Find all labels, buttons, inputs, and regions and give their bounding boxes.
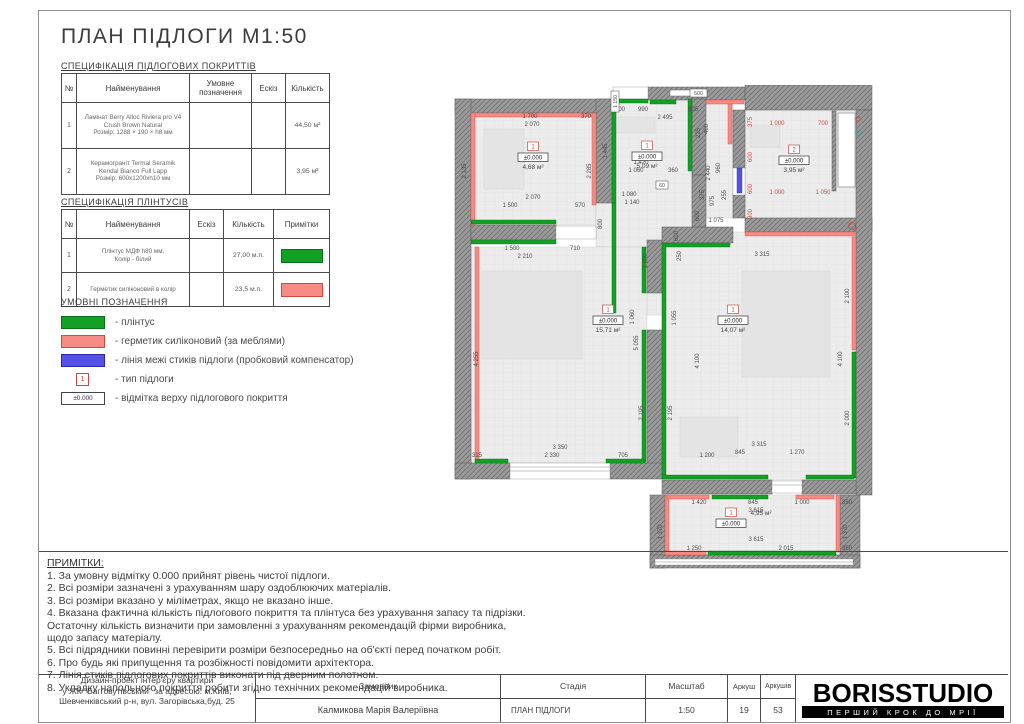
dimension-label: 2 100 <box>845 288 851 304</box>
plinth-band <box>612 99 616 203</box>
boxed-dimension-label: 500 <box>694 91 703 97</box>
dimension-label: 4 100 <box>695 353 701 369</box>
column-header: Примітки <box>274 210 330 239</box>
furniture-outline <box>742 271 830 377</box>
legend-swatch <box>61 335 105 348</box>
wall <box>455 99 471 479</box>
room-area: 3,95 м² <box>783 167 805 174</box>
dimension-label: 1 370 <box>843 524 849 540</box>
elevation-value: ±0.000 <box>722 521 741 527</box>
dimension-label: 1 800 <box>643 253 649 269</box>
note-color-swatch <box>281 283 323 297</box>
wall <box>610 463 662 479</box>
sealant-band <box>852 237 856 350</box>
plinth-swatch <box>61 316 105 329</box>
dimension-label: 375 <box>748 116 754 127</box>
dimension-label: 2 195 <box>639 405 645 421</box>
elevation-value: ±0.000 <box>638 154 657 160</box>
legend-label: - відмітка верху підлогового покриття <box>115 393 288 404</box>
floor-plan-drawing: 1 7003702 0702 1352 2852 0701 5005701 50… <box>450 85 875 577</box>
symbol-cell <box>190 103 252 149</box>
project-line: у ЖК "Багговутівський" за адресою: м.Киї… <box>39 686 255 697</box>
column-header: № <box>62 74 77 103</box>
dimension-label: 2 070 <box>524 122 540 128</box>
wall <box>647 330 662 470</box>
wall <box>662 480 772 494</box>
dimension-label: 400 <box>704 123 710 134</box>
furniture-outline <box>750 125 780 147</box>
dimension-label: 1 200 <box>699 453 715 459</box>
legend-item: - лінія межі стиків підлоги (пробковий к… <box>61 354 391 366</box>
note-line: Остаточну кількість визначити при замовл… <box>47 620 1008 632</box>
dimension-label: 710 <box>570 246 581 252</box>
plinth-band <box>471 220 556 224</box>
legend-swatch <box>61 354 105 367</box>
dimension-label: 1 270 <box>789 450 805 456</box>
dimension-label: 845 <box>735 450 746 456</box>
furniture-outline <box>680 417 738 457</box>
project-line: Шевченківський р-н, вул. Загорівська,буд… <box>39 696 255 707</box>
room-area: 4,68 м² <box>522 164 544 171</box>
room-area: 5,09 м² <box>636 163 658 170</box>
dimension-label: 250 <box>677 250 683 261</box>
note-line: 4. Вказана фактична кількість підлоговог… <box>47 607 1008 619</box>
sheet-label: Аркуш <box>728 675 760 699</box>
symbol-cell <box>190 149 252 195</box>
dimension-label: 805 <box>688 107 699 113</box>
boxed-dimension-label: 1 150 <box>613 95 619 108</box>
wall <box>832 111 836 191</box>
material-name: Ламінат Berry Alloc Riviera pro V4Crush … <box>77 103 190 149</box>
sealant-band <box>836 495 840 552</box>
dimension-label: 2 070 <box>525 195 541 201</box>
dimension-label: 3 315 <box>754 252 770 258</box>
dimension-label: 1 370 <box>658 524 664 540</box>
plinth-band <box>662 475 768 479</box>
dimension-label: 375 <box>700 189 706 200</box>
dimension-label: 1 700 <box>522 114 538 120</box>
plinth-band <box>475 459 508 463</box>
wall <box>733 110 745 168</box>
notes-box: ПРИМІТКИ: 1. За умовну відмітку 0.000 пр… <box>39 551 1008 675</box>
dimension-label: 1 000 <box>794 500 810 506</box>
row-number: 1 <box>62 103 77 149</box>
plinth-band <box>666 243 730 247</box>
legend: УМОВНІ ПОЗНАЧЕННЯ - плінтус- герметик си… <box>61 297 391 411</box>
dimension-label: 960 <box>716 162 722 173</box>
plinth-band <box>471 240 556 244</box>
plinth-spec-row: 1Плінтус МДФ h80 мм,Колір - білий27,00 м… <box>62 239 330 273</box>
dimension-label: 600 <box>695 210 701 221</box>
wall <box>733 193 745 218</box>
dimension-label: 600 <box>748 183 754 194</box>
legend-swatch <box>61 316 105 329</box>
customer-label: Замовник <box>256 675 500 699</box>
sketch-cell <box>252 149 286 195</box>
dimension-label: 845 <box>748 500 759 506</box>
title-block-logo: BORISSTUDIO ПЕРШИЙ КРОК ДО МРІЇ <box>796 675 1010 722</box>
dimension-label: 2 495 <box>657 115 673 121</box>
floor-joint-band <box>737 168 742 193</box>
legend-label: - герметик силіконовий (за меблями) <box>115 336 285 347</box>
floor-plan-svg: 1 7003702 0702 1352 2852 0701 5005701 50… <box>450 85 875 577</box>
dimension-label: 1 050 <box>815 190 831 196</box>
elevation-value: ±0.000 <box>785 158 804 164</box>
scale-label: Масштаб <box>646 675 727 699</box>
page-title: ПЛАН ПІДЛОГИ М1:50 <box>61 25 308 49</box>
project-line: Дизайн-проект інтер'єру квартири <box>39 675 255 686</box>
dimension-label: 2 135 <box>462 163 468 179</box>
studio-logo-tagline: ПЕРШИЙ КРОК ДО МРІЇ <box>802 706 1004 718</box>
note-line: 3. Всі розміри вказано у міліметрах, якщ… <box>47 595 1008 607</box>
note-cell <box>274 239 330 273</box>
title-block-project: Дизайн-проект інтер'єру квартириу ЖК "Ба… <box>39 675 256 722</box>
opening <box>772 481 802 493</box>
plinth-band <box>612 203 616 313</box>
dimension-label: 1 075 <box>708 218 724 224</box>
scale-value: 1:50 <box>646 699 727 723</box>
floor-type-mark: 1 <box>76 373 89 386</box>
legend-label: - плінтус <box>115 317 155 328</box>
dimension-label: 1 420 <box>691 500 707 506</box>
dimension-label: 990 <box>638 107 649 113</box>
plinth-band <box>650 100 676 104</box>
drawing-sheet-frame: ПЛАН ПІДЛОГИ М1:50 СПЕЦИФІКАЦІЯ ПІДЛОГОВ… <box>38 10 1011 723</box>
dimension-label: 350 <box>842 500 853 506</box>
material-name: Керамограніт Termal SeramikKendal Bianco… <box>77 149 190 195</box>
note-line: 2. Всі розміри зазначені з урахуванням ш… <box>47 582 1008 594</box>
column-header: Умовне позначення <box>190 74 252 103</box>
dimension-label: 1 055 <box>672 310 678 326</box>
elevation-value: ±0.000 <box>724 318 743 324</box>
boxed-dimension-label: 60 <box>659 183 665 189</box>
dimension-label: 1 000 <box>769 121 785 127</box>
dimension-label: 4 255 <box>474 351 480 367</box>
dimension-label: 2 000 <box>845 410 851 426</box>
dimension-label: 1 500 <box>502 203 518 209</box>
wall <box>802 480 856 494</box>
customer-name: Калмикова Марія Валеріївна <box>256 699 500 723</box>
row-number: 1 <box>62 239 77 273</box>
title-block-stage: Стадія ПЛАН ПІДЛОГИ <box>501 675 646 722</box>
column-header: Ескіз <box>252 74 286 103</box>
sheets-label: Аркушів <box>761 675 795 699</box>
material-name: Плінтус МДФ h80 мм,Колір - білий <box>77 239 190 273</box>
dimension-label: 315 <box>472 453 483 459</box>
plinth-spec-section-label: СПЕЦИФІКАЦІЯ ПЛІНТУСІВ <box>61 197 188 207</box>
sealant-band <box>667 495 709 499</box>
elevation-value: ±0.000 <box>599 318 618 324</box>
legend-label: - лінія межі стиків підлоги (пробковий к… <box>115 355 354 366</box>
stage-label: Стадія <box>501 675 645 699</box>
dimension-label: 3 315 <box>751 442 767 448</box>
sealant-band <box>471 113 475 225</box>
plinth-spec-table: №НайменуванняЕскізКількістьПримітки 1Плі… <box>61 209 330 307</box>
note-line: щодо запасу матеріалу. <box>47 632 1008 644</box>
column-header: № <box>62 210 77 239</box>
dimension-label: 600 <box>674 230 680 241</box>
dimension-label: 975 <box>710 195 716 206</box>
title-block-sheet: Аркуш 19 <box>728 675 761 722</box>
wall <box>455 463 510 479</box>
dimension-label: 1 080 <box>621 192 637 198</box>
elevation-value: ±0.000 <box>524 155 543 161</box>
dimension-label: 570 <box>575 203 586 209</box>
title-block-sheets: Аркушів 53 <box>761 675 796 722</box>
title-block-scale: Масштаб 1:50 <box>646 675 728 722</box>
legend-item: - герметик силіконовий (за меблями) <box>61 335 391 347</box>
wall <box>745 218 872 232</box>
plinth-band <box>712 495 768 499</box>
dimension-label: 800 <box>598 218 604 229</box>
legend-swatch: 1 <box>61 373 105 386</box>
wall <box>662 227 733 243</box>
column-header: Найменування <box>77 74 190 103</box>
dimension-label: 2 330 <box>544 453 560 459</box>
dimension-label: 3 350 <box>552 445 568 451</box>
dimension-label: 4 100 <box>838 351 844 367</box>
plinth-spec-header: №НайменуванняЕскізКількістьПримітки <box>62 210 330 239</box>
dimension-label: 2 210 <box>517 254 533 260</box>
dimension-label: 900 <box>748 208 754 219</box>
wall <box>471 225 556 240</box>
dimension-label: 370 <box>581 114 592 120</box>
dimension-label: 2 440 <box>706 165 712 181</box>
column-header: Кількість <box>286 74 330 103</box>
plinth-band <box>642 330 646 462</box>
plinth-band <box>852 352 856 478</box>
note-line: 5. Всі підрядники повинні перевірити роз… <box>47 644 1008 656</box>
sealant-band <box>592 113 596 205</box>
wall <box>745 85 872 110</box>
sealant-band <box>796 495 834 499</box>
plinth-band <box>606 459 645 463</box>
notes-title: ПРИМІТКИ: <box>47 557 1008 569</box>
sealant-band <box>728 104 732 144</box>
dimension-label: 700 <box>818 121 829 127</box>
dimension-label: 255 <box>722 189 728 200</box>
stage-value: ПЛАН ПІДЛОГИ <box>501 699 645 723</box>
sketch-cell <box>190 239 224 273</box>
dimension-label: 705 <box>618 453 629 459</box>
dimension-label: 360 <box>668 168 679 174</box>
sealant-band <box>665 495 669 552</box>
legend-swatch: ±0.000 <box>61 392 105 405</box>
elevation-mark: ±0.000 <box>61 392 105 405</box>
room-area: 4,95 м² <box>750 510 772 517</box>
room-area: 15,71 м² <box>596 327 622 334</box>
dimension-label: 5 055 <box>634 335 640 351</box>
opening <box>556 226 596 239</box>
title-block-customer: Замовник Калмикова Марія Валеріївна <box>256 675 501 722</box>
column-header: Найменування <box>77 210 190 239</box>
sealant-band <box>745 232 856 236</box>
joint-line-swatch <box>61 354 105 367</box>
quantity-value: 44,50 м² <box>286 103 330 149</box>
dimension-label: 2 285 <box>587 163 593 179</box>
note-line: 1. За умовну відмітку 0.000 прийнят ріве… <box>47 570 1008 582</box>
wall <box>647 240 662 293</box>
dimension-label: 3 615 <box>748 537 764 543</box>
wall <box>856 110 872 495</box>
room-area: 14,07 м² <box>721 327 747 334</box>
sketch-cell <box>252 103 286 149</box>
dimension-label: 1 140 <box>624 200 640 206</box>
floor-spec-row: 2Керамограніт Termal SeramikKendal Bianc… <box>62 149 330 195</box>
column-header: Кількість <box>224 210 274 239</box>
dimension-label: 2 195 <box>668 405 674 421</box>
note-line: 6. Про будь які припущення та розбіжност… <box>47 657 1008 669</box>
floor-spec-header: №НайменуванняУмовне позначенняЕскізКільк… <box>62 74 330 103</box>
dimension-label: 1 060 <box>630 309 636 325</box>
floor-spec-section-label: СПЕЦИФІКАЦІЯ ПІДЛОГОВИХ ПОКРИТТІВ <box>61 61 256 71</box>
sealant-band <box>706 100 744 104</box>
sheets-value: 53 <box>761 699 795 723</box>
dimension-label: 1 445 <box>603 143 609 159</box>
title-block: Дизайн-проект інтер'єру квартириу ЖК "Ба… <box>39 675 1010 722</box>
dimension-label: 1 500 <box>504 246 520 252</box>
legend-title: УМОВНІ ПОЗНАЧЕННЯ <box>61 297 391 307</box>
furniture-outline <box>615 117 655 133</box>
legend-item: ±0.000- відмітка верху підлогового покри… <box>61 392 391 404</box>
legend-item: - плінтус <box>61 316 391 328</box>
column-header: Ескіз <box>190 210 224 239</box>
sealant-swatch <box>61 335 105 348</box>
furniture-outline <box>482 271 582 359</box>
dimension-label: 1 000 <box>769 190 785 196</box>
sheet-value: 19 <box>728 699 760 723</box>
plinth-band <box>662 243 666 475</box>
floor-spec-table: №НайменуванняУмовне позначенняЕскізКільк… <box>61 73 330 195</box>
note-color-swatch <box>281 249 323 263</box>
legend-label: - тип підлоги <box>115 374 174 385</box>
dimension-label: 225 <box>696 127 702 138</box>
quantity-value: 27,00 м.п. <box>224 239 274 273</box>
studio-logo: BORISSTUDIO <box>802 680 1004 706</box>
wall <box>455 99 613 113</box>
dimension-label: 600 <box>748 151 754 162</box>
row-number: 2 <box>62 149 77 195</box>
floor-spec-row: 1Ламінат Berry Alloc Riviera pro V4Crush… <box>62 103 330 149</box>
plinth-band <box>806 475 854 479</box>
legend-item: 1- тип підлоги <box>61 373 391 385</box>
fixture <box>838 113 855 187</box>
quantity-value: 3,95 м² <box>286 149 330 195</box>
